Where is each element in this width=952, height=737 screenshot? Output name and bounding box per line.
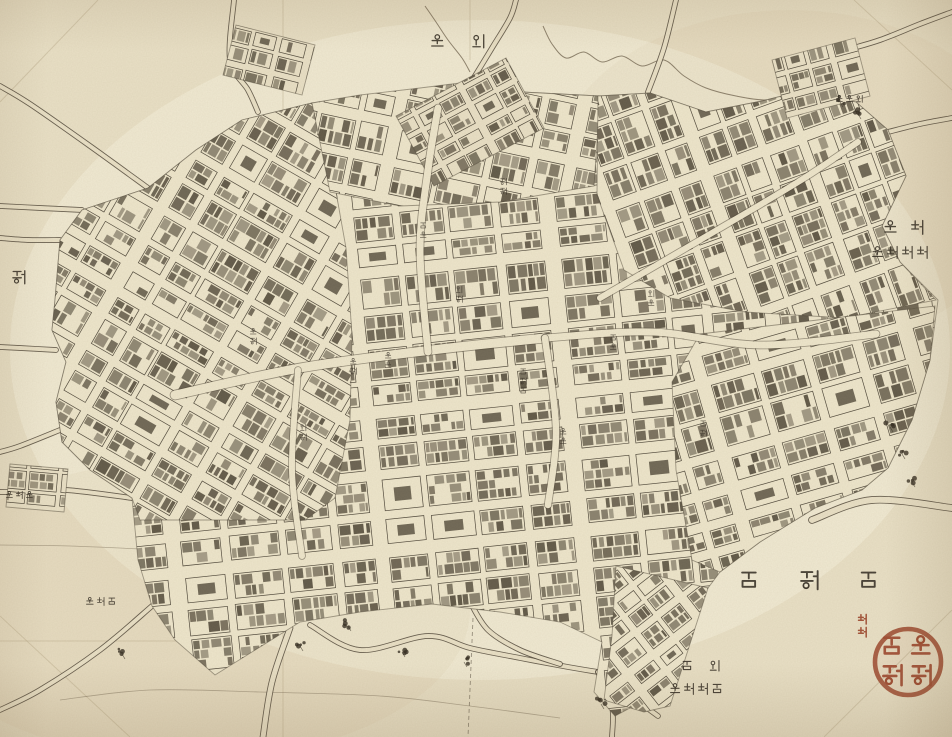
map-svg (0, 0, 952, 737)
historical-city-map (0, 0, 952, 737)
